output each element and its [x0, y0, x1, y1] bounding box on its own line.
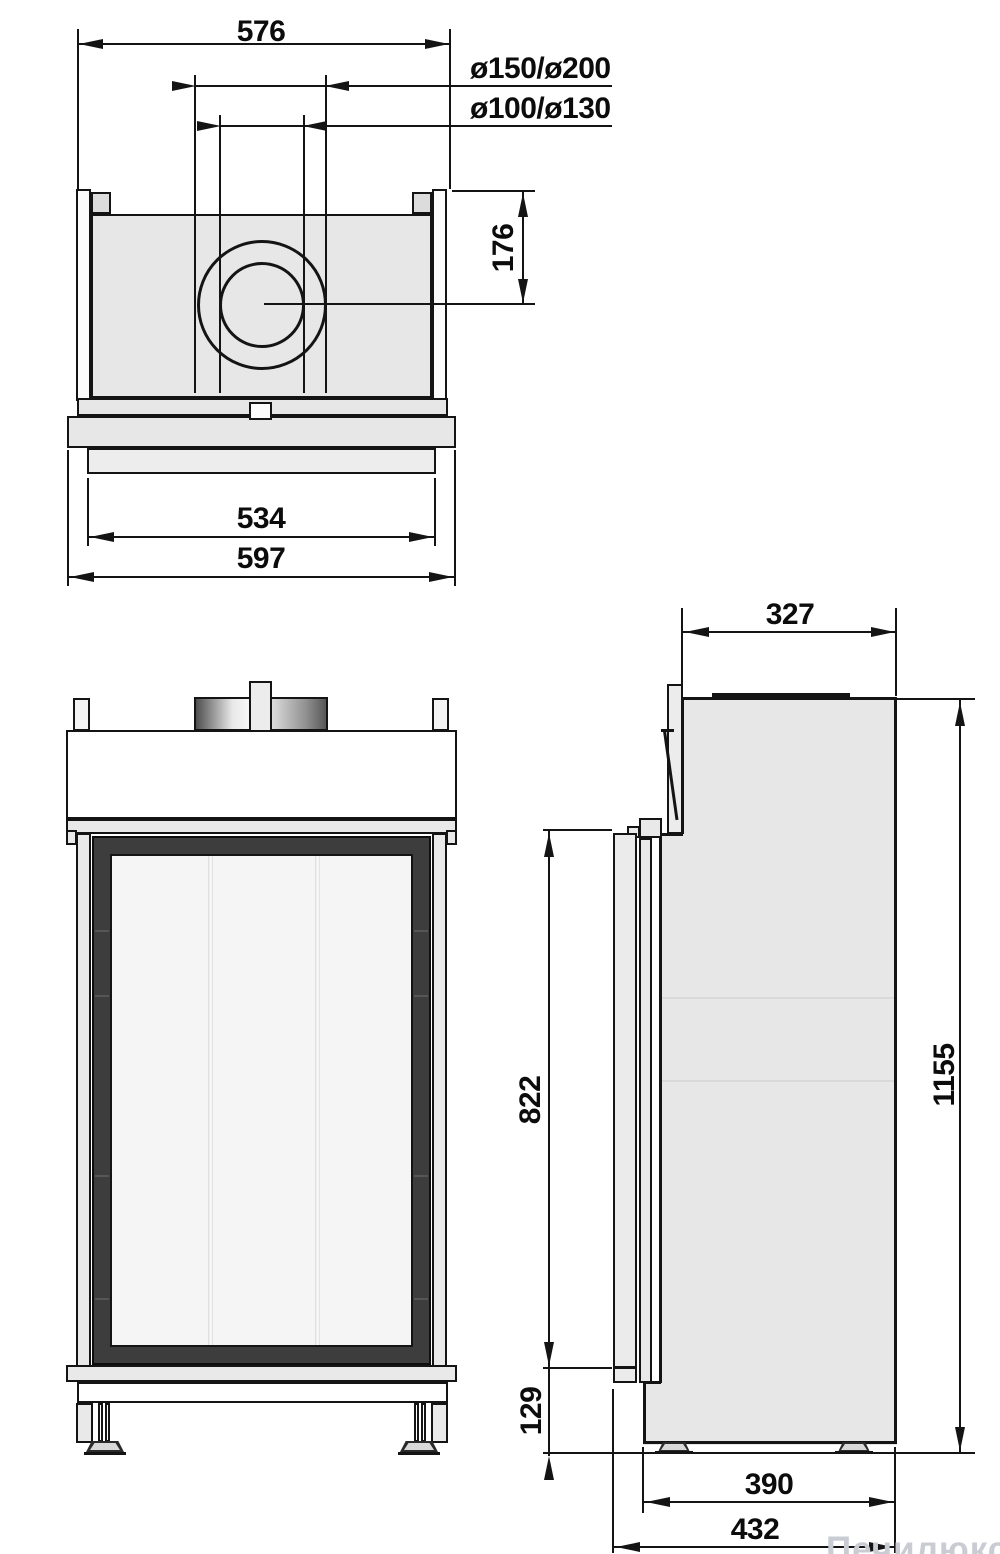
side-trim-band: [639, 818, 662, 838]
front-trim-right-ear: [446, 830, 457, 845]
glass-divider-right: [315, 856, 320, 1345]
top-view-right-side-panel: [432, 189, 447, 401]
frame-joint-line: [414, 1175, 428, 1177]
dim-576-arrow-right: [425, 39, 449, 49]
dim-base-inner-label: 534: [237, 504, 286, 534]
frame-joint-line: [414, 930, 428, 932]
dim-432-arrow-left: [616, 1542, 640, 1552]
ground-reference-line: [543, 1452, 975, 1454]
front-left-foot-base: [84, 1452, 126, 1455]
dim-534-line: [88, 536, 435, 538]
flue-inner-circle: [219, 262, 305, 348]
dim-390-line: [644, 1501, 895, 1503]
dim-flue-outer-arrow-left: [172, 81, 196, 91]
front-left-top-tab: [73, 698, 90, 731]
top-view-left-side-panel: [76, 189, 91, 401]
front-right-leg-rod: [414, 1403, 419, 1442]
dim-flue-outer-arrow-right: [325, 81, 349, 91]
front-left-leg-rod: [105, 1403, 110, 1442]
dim-1155-arrow-bottom: [955, 1427, 965, 1451]
frame-joint-line: [414, 1298, 428, 1300]
dim-flue-inner-line: [220, 125, 612, 127]
dim-129-line: [548, 1368, 550, 1456]
front-right-foot-face: [404, 1443, 434, 1450]
top-view-wide-bar: [67, 416, 456, 448]
side-panel-joint: [662, 1080, 894, 1082]
top-view-recessed-bar: [87, 448, 436, 474]
side-top-plate: [712, 693, 850, 699]
dim-flue-offset-label: 176: [489, 224, 519, 273]
dim-390-arrow-right: [869, 1497, 893, 1507]
side-rear-foot-face: [841, 1444, 867, 1450]
dim-flue-inner-label: ø100/ø130: [470, 94, 611, 124]
dim-576-ext-right: [449, 29, 451, 189]
dim-597-arrow-right: [429, 572, 453, 582]
dim-597-ext-right: [454, 450, 456, 586]
top-view-left-bracket-tab: [91, 192, 111, 214]
front-right-trim-strip: [432, 833, 447, 1382]
dim-432-ext-left: [612, 1389, 614, 1553]
door-glass: [110, 854, 413, 1347]
front-left-leg-rod: [98, 1403, 103, 1442]
frame-joint-line: [95, 995, 109, 997]
dim-1155-arrow-top: [955, 702, 965, 726]
top-view-latch-tab: [249, 402, 272, 420]
dim-top-depth-label: 327: [766, 600, 815, 630]
front-top-trim-band: [66, 819, 457, 834]
front-bottom-sill: [66, 1365, 457, 1382]
front-base-band: [77, 1382, 448, 1403]
dim-576-ext-left: [77, 29, 79, 189]
dim-plinth-height-label: 129: [517, 1387, 547, 1436]
dim-597-line: [68, 576, 455, 578]
front-left-trim-strip: [76, 833, 91, 1382]
glass-divider-left: [208, 856, 213, 1345]
dim-body-depth-label: 390: [745, 1470, 794, 1500]
dim-327-ext-left: [681, 608, 683, 692]
dim-327-arrow-left: [685, 627, 709, 637]
side-body-front-lower-edge: [643, 1382, 646, 1443]
front-left-leg: [76, 1403, 93, 1443]
dim-shared-ref-1368: [543, 1367, 612, 1369]
dim-327-line: [683, 631, 897, 633]
dim-534-arrow-right: [409, 532, 433, 542]
dim-176-arrow-bottom: [518, 279, 528, 303]
dim-176-ref-center: [264, 303, 535, 305]
dim-822-arrow-bottom: [544, 1342, 554, 1366]
dim-flue-outer-label: ø150/ø200: [470, 54, 611, 84]
front-right-leg-rod: [421, 1403, 426, 1442]
dim-door-height-label: 822: [516, 1076, 546, 1125]
dim-flue-inner-arrow-left: [197, 121, 221, 131]
dim-flue-ext: [219, 115, 221, 393]
front-top-box: [66, 730, 457, 819]
dim-390-arrow-left: [646, 1497, 670, 1507]
frame-joint-line: [414, 995, 428, 997]
dim-129-arrow-bottom: [544, 1456, 554, 1480]
dim-total-depth-label: 432: [731, 1515, 780, 1545]
side-door-strip-inner: [639, 838, 652, 1383]
dim-576-arrow-left: [79, 39, 103, 49]
side-panel-joint: [662, 997, 894, 999]
side-body-front-mid-edge: [659, 833, 662, 1383]
dim-base-outer-label: 597: [237, 544, 286, 574]
frame-joint-line: [95, 1175, 109, 1177]
dim-top-width-label: 576: [237, 17, 286, 47]
dim-flue-ext: [194, 75, 196, 393]
side-door-strip-front: [613, 833, 637, 1383]
front-right-leg: [431, 1403, 448, 1443]
dim-597-ext-left: [67, 450, 69, 586]
front-left-foot-face: [90, 1443, 120, 1450]
dim-390-ext-left: [642, 1447, 644, 1513]
dim-327-arrow-right: [871, 627, 895, 637]
dim-flue-ext: [303, 115, 305, 393]
dim-822-line: [548, 831, 550, 1368]
front-right-foot-base: [398, 1452, 440, 1455]
dim-327-ext-right: [895, 608, 897, 696]
dim-822-ref-top: [543, 829, 612, 831]
dim-flue-inner-arrow-right: [303, 121, 327, 131]
top-view-right-bracket-tab: [412, 192, 432, 214]
dim-597-arrow-left: [70, 572, 94, 582]
dim-total-height-label: 1155: [930, 1043, 960, 1106]
watermark: Печилюкс.ру: [826, 1530, 1000, 1554]
side-body-back-edge: [894, 697, 897, 1444]
side-door-strip-joint: [615, 1366, 635, 1369]
dim-822-arrow-top: [544, 833, 554, 857]
dim-534-arrow-left: [90, 532, 114, 542]
dim-flue-outer-line: [195, 85, 612, 87]
side-front-foot-face: [661, 1444, 687, 1450]
technical-drawing-page: 576 ø150/ø200 ø100/ø130 176 534 597 327 …: [0, 0, 1000, 1554]
front-right-top-tab: [432, 698, 449, 731]
frame-joint-line: [95, 1298, 109, 1300]
dim-1155-ref-top: [897, 698, 975, 700]
dim-176-arrow-top: [518, 193, 528, 217]
frame-joint-line: [95, 930, 109, 932]
